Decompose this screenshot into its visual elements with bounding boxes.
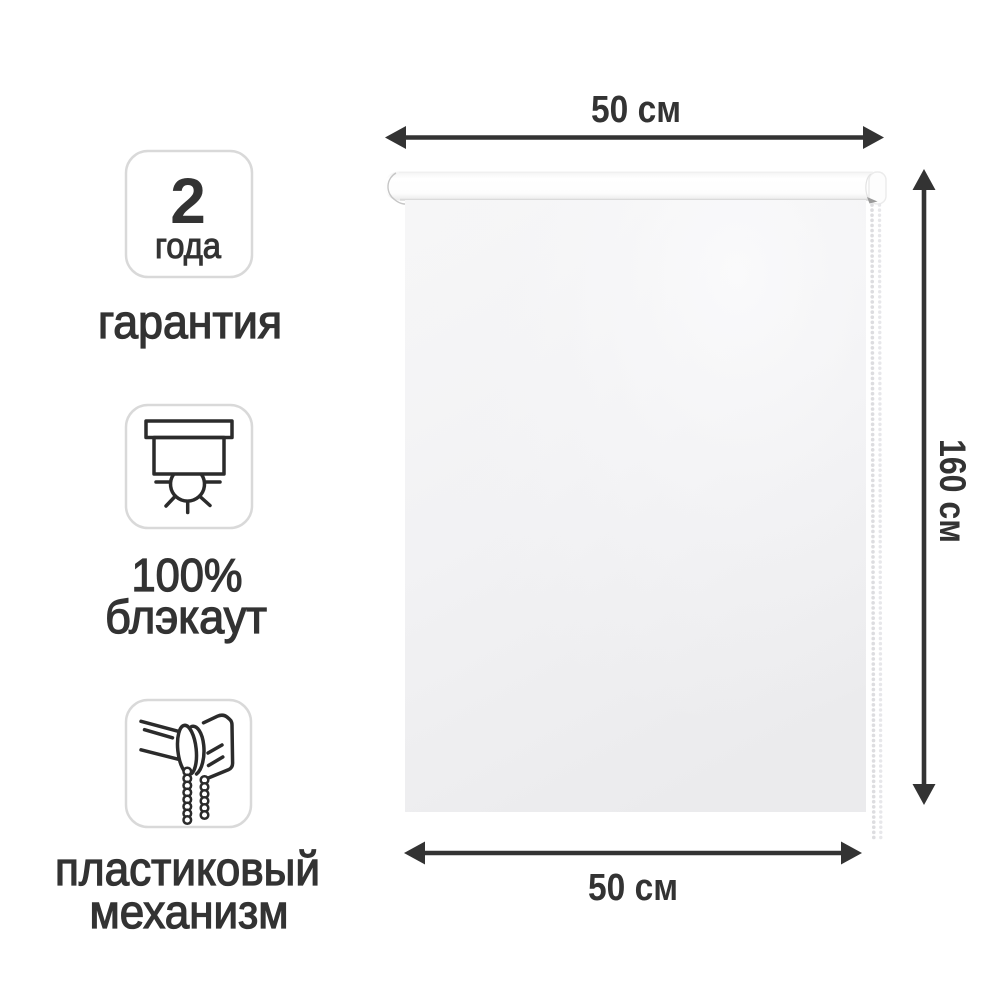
svg-text:механизм: механизм (90, 885, 289, 938)
svg-text:года: года (155, 225, 222, 266)
svg-text:гарантия: гарантия (98, 295, 282, 348)
svg-text:блэкаут: блэкаут (105, 590, 267, 643)
svg-text:160 см: 160 см (932, 439, 973, 543)
svg-text:50 см: 50 см (591, 89, 681, 131)
svg-text:50 см: 50 см (588, 867, 678, 909)
